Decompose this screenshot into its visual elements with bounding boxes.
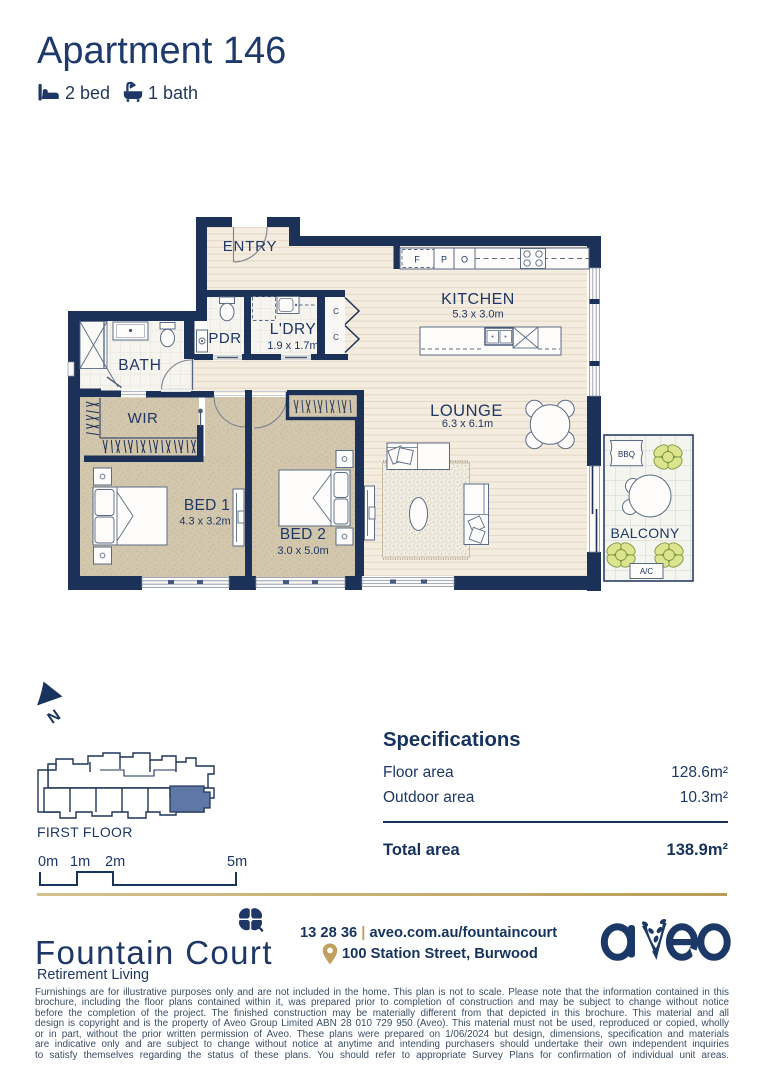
svg-text:1.9 x 1.7m: 1.9 x 1.7m: [267, 340, 318, 352]
svg-text:PDR: PDR: [208, 330, 241, 347]
svg-text:0m: 0m: [38, 854, 58, 870]
svg-text:5.3 x 3.0m: 5.3 x 3.0m: [452, 309, 503, 321]
svg-text:1m: 1m: [70, 854, 90, 870]
svg-text:6.3 x 6.1m: 6.3 x 6.1m: [442, 418, 493, 430]
svg-text:A/C: A/C: [640, 567, 654, 576]
svg-text:ENTRY: ENTRY: [223, 238, 278, 255]
svg-text:BATH: BATH: [118, 357, 161, 374]
svg-text:C: C: [333, 333, 339, 342]
svg-text:P: P: [441, 255, 447, 265]
svg-text:5m: 5m: [227, 854, 247, 870]
svg-text:2m: 2m: [105, 854, 125, 870]
svg-text:FIRST FLOOR: FIRST FLOOR: [37, 824, 133, 840]
svg-text:WIR: WIR: [128, 410, 159, 427]
svg-text:BBQ: BBQ: [618, 450, 635, 459]
svg-text:BALCONY: BALCONY: [610, 525, 679, 541]
svg-text:BED 1: BED 1: [184, 497, 230, 514]
svg-text:L'DRY: L'DRY: [270, 321, 317, 338]
svg-text:N: N: [45, 707, 64, 728]
svg-text:C: C: [333, 307, 339, 316]
svg-text:4.3 x 3.2m: 4.3 x 3.2m: [179, 516, 230, 528]
svg-text:F: F: [414, 255, 420, 265]
svg-text:O: O: [461, 255, 468, 265]
svg-text:BED 2: BED 2: [280, 526, 326, 543]
svg-text:KITCHEN: KITCHEN: [441, 291, 515, 308]
svg-text:3.0 x 5.0m: 3.0 x 5.0m: [277, 545, 328, 557]
